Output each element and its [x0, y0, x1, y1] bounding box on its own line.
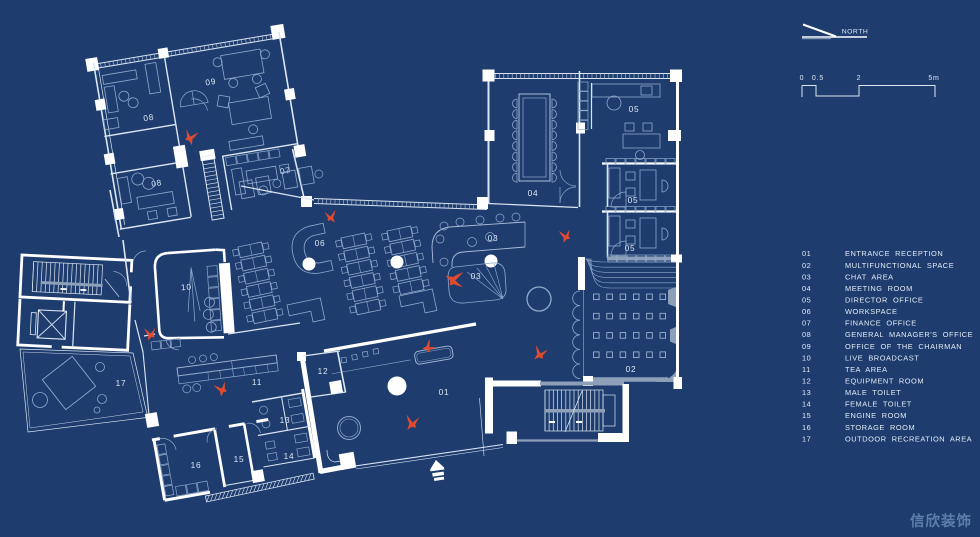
- svg-text:11: 11: [252, 377, 262, 387]
- svg-text:5m: 5m: [928, 75, 939, 82]
- svg-text:MULTIFUNCTIONAL SPACE: MULTIFUNCTIONAL SPACE: [845, 261, 954, 270]
- svg-text:14: 14: [284, 451, 295, 461]
- svg-text:10: 10: [181, 281, 193, 292]
- svg-text:03: 03: [471, 271, 482, 281]
- svg-text:11: 11: [802, 365, 811, 374]
- svg-text:FEMALE TOILET: FEMALE TOILET: [845, 400, 912, 409]
- svg-text:信欣装饰: 信欣装饰: [910, 512, 972, 530]
- svg-text:ENGINE ROOM: ENGINE ROOM: [845, 411, 907, 420]
- svg-text:01: 01: [439, 387, 450, 397]
- svg-text:02: 02: [802, 261, 811, 270]
- svg-text:13: 13: [802, 388, 811, 397]
- svg-text:03: 03: [802, 272, 811, 281]
- svg-text:05: 05: [802, 296, 811, 305]
- svg-text:03: 03: [488, 233, 499, 243]
- svg-text:DIRECTOR OFFICE: DIRECTOR OFFICE: [845, 296, 923, 305]
- svg-text:04: 04: [528, 188, 539, 198]
- svg-text:0: 0: [800, 75, 805, 82]
- svg-text:12: 12: [802, 377, 811, 386]
- svg-text:TEA AREA: TEA AREA: [845, 365, 888, 374]
- svg-text:15: 15: [802, 411, 811, 420]
- svg-text:CHAT AREA: CHAT AREA: [845, 272, 894, 281]
- svg-text:08: 08: [143, 112, 155, 124]
- svg-text:ENTRANCE RECEPTION: ENTRANCE RECEPTION: [845, 249, 943, 258]
- svg-text:EQUIPMENT ROOM: EQUIPMENT ROOM: [845, 377, 924, 386]
- svg-text:15: 15: [234, 454, 245, 464]
- svg-text:17: 17: [802, 434, 811, 443]
- svg-text:09: 09: [205, 76, 217, 88]
- svg-text:13: 13: [280, 415, 291, 425]
- svg-text:05: 05: [629, 104, 640, 114]
- svg-text:2: 2: [857, 75, 862, 82]
- svg-text:12: 12: [318, 366, 329, 376]
- svg-text:02: 02: [626, 364, 637, 374]
- svg-text:06: 06: [802, 307, 811, 316]
- svg-text:OFFICE OF THE CHAIRMAN: OFFICE OF THE CHAIRMAN: [845, 342, 962, 351]
- svg-text:MALE TOILET: MALE TOILET: [845, 388, 901, 397]
- svg-text:WORKSPACE: WORKSPACE: [845, 307, 897, 316]
- svg-text:08: 08: [802, 330, 811, 339]
- svg-text:0.5: 0.5: [812, 75, 824, 82]
- svg-text:NORTH: NORTH: [842, 29, 869, 36]
- svg-text:14: 14: [802, 400, 811, 409]
- svg-text:OUTDOOR RECREATION AREA: OUTDOOR RECREATION AREA: [845, 434, 972, 443]
- svg-text:GENERAL MANAGER'S OFFICE: GENERAL MANAGER'S OFFICE: [845, 330, 973, 339]
- svg-text:MEETING ROOM: MEETING ROOM: [845, 284, 913, 293]
- svg-text:01: 01: [802, 249, 811, 258]
- svg-text:07: 07: [802, 319, 811, 328]
- svg-text:16: 16: [802, 423, 811, 432]
- svg-text:17: 17: [116, 378, 127, 388]
- svg-text:04: 04: [802, 284, 811, 293]
- svg-text:16: 16: [191, 460, 202, 470]
- svg-text:LIVE BROADCAST: LIVE BROADCAST: [845, 353, 919, 362]
- svg-text:09: 09: [802, 342, 811, 351]
- svg-text:FINANCE OFFICE: FINANCE OFFICE: [845, 319, 917, 328]
- svg-text:05: 05: [628, 195, 639, 205]
- svg-text:STORAGE ROOM: STORAGE ROOM: [845, 423, 915, 432]
- svg-text:06: 06: [315, 238, 326, 248]
- svg-text:10: 10: [802, 353, 811, 362]
